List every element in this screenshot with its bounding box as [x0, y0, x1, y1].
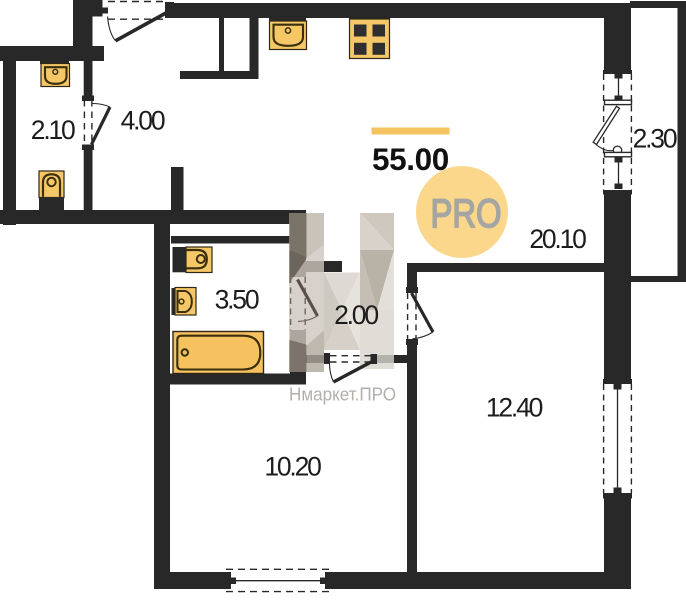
svg-text:2.00: 2.00 [334, 300, 378, 330]
svg-text:2.30: 2.30 [633, 123, 677, 153]
svg-text:55.00: 55.00 [372, 141, 449, 177]
svg-text:Нмаркет.ПРО: Нмаркет.ПРО [289, 385, 396, 405]
svg-text:3.50: 3.50 [215, 285, 259, 315]
svg-text:10.20: 10.20 [264, 451, 321, 481]
svg-text:2.10: 2.10 [31, 115, 75, 145]
svg-text:PRO: PRO [430, 191, 501, 236]
svg-text:20.10: 20.10 [529, 224, 586, 254]
svg-text:4.00: 4.00 [121, 106, 165, 136]
svg-text:12.40: 12.40 [486, 393, 543, 423]
